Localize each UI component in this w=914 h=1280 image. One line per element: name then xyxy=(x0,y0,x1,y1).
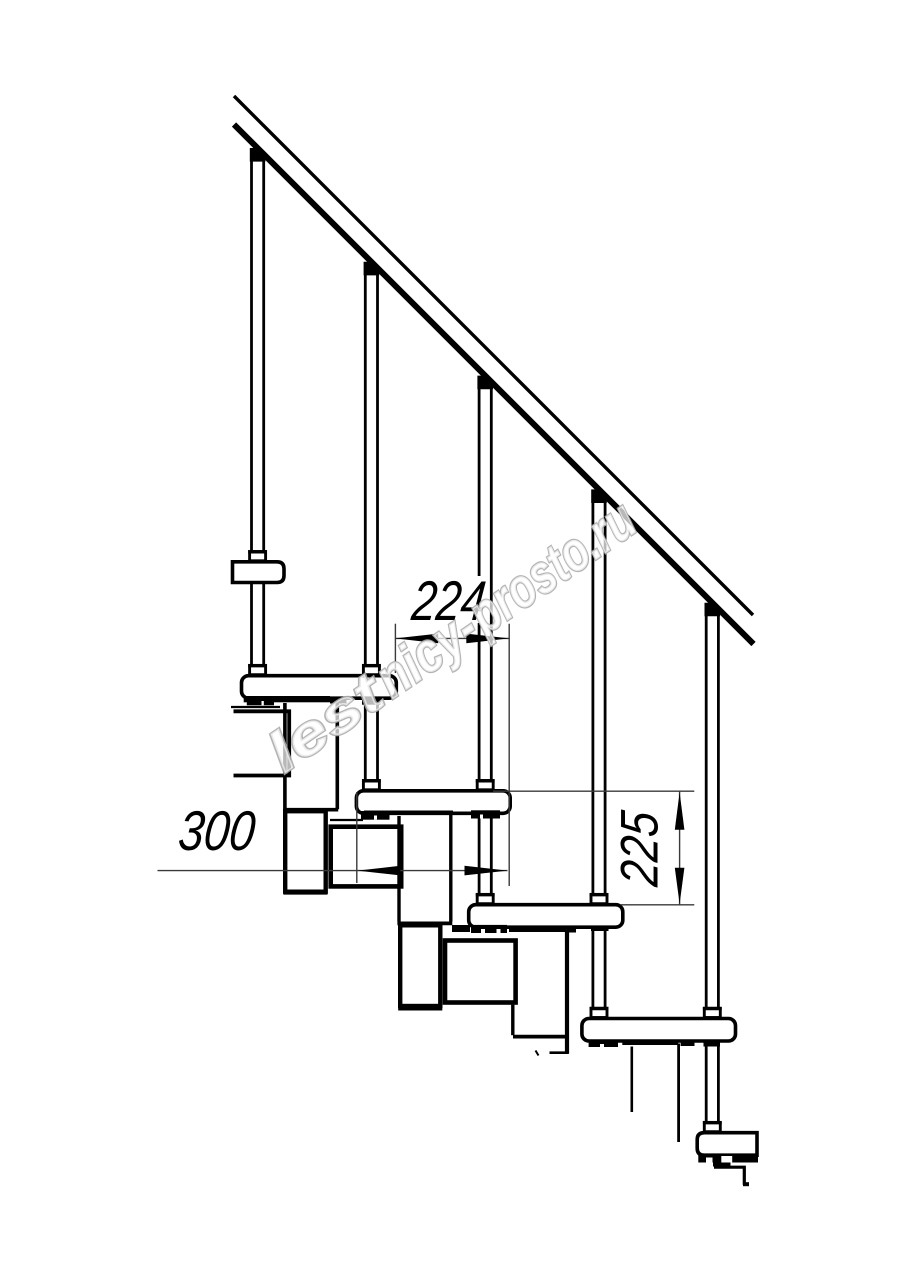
svg-text:225: 225 xyxy=(611,808,670,889)
svg-text:300: 300 xyxy=(176,799,259,862)
